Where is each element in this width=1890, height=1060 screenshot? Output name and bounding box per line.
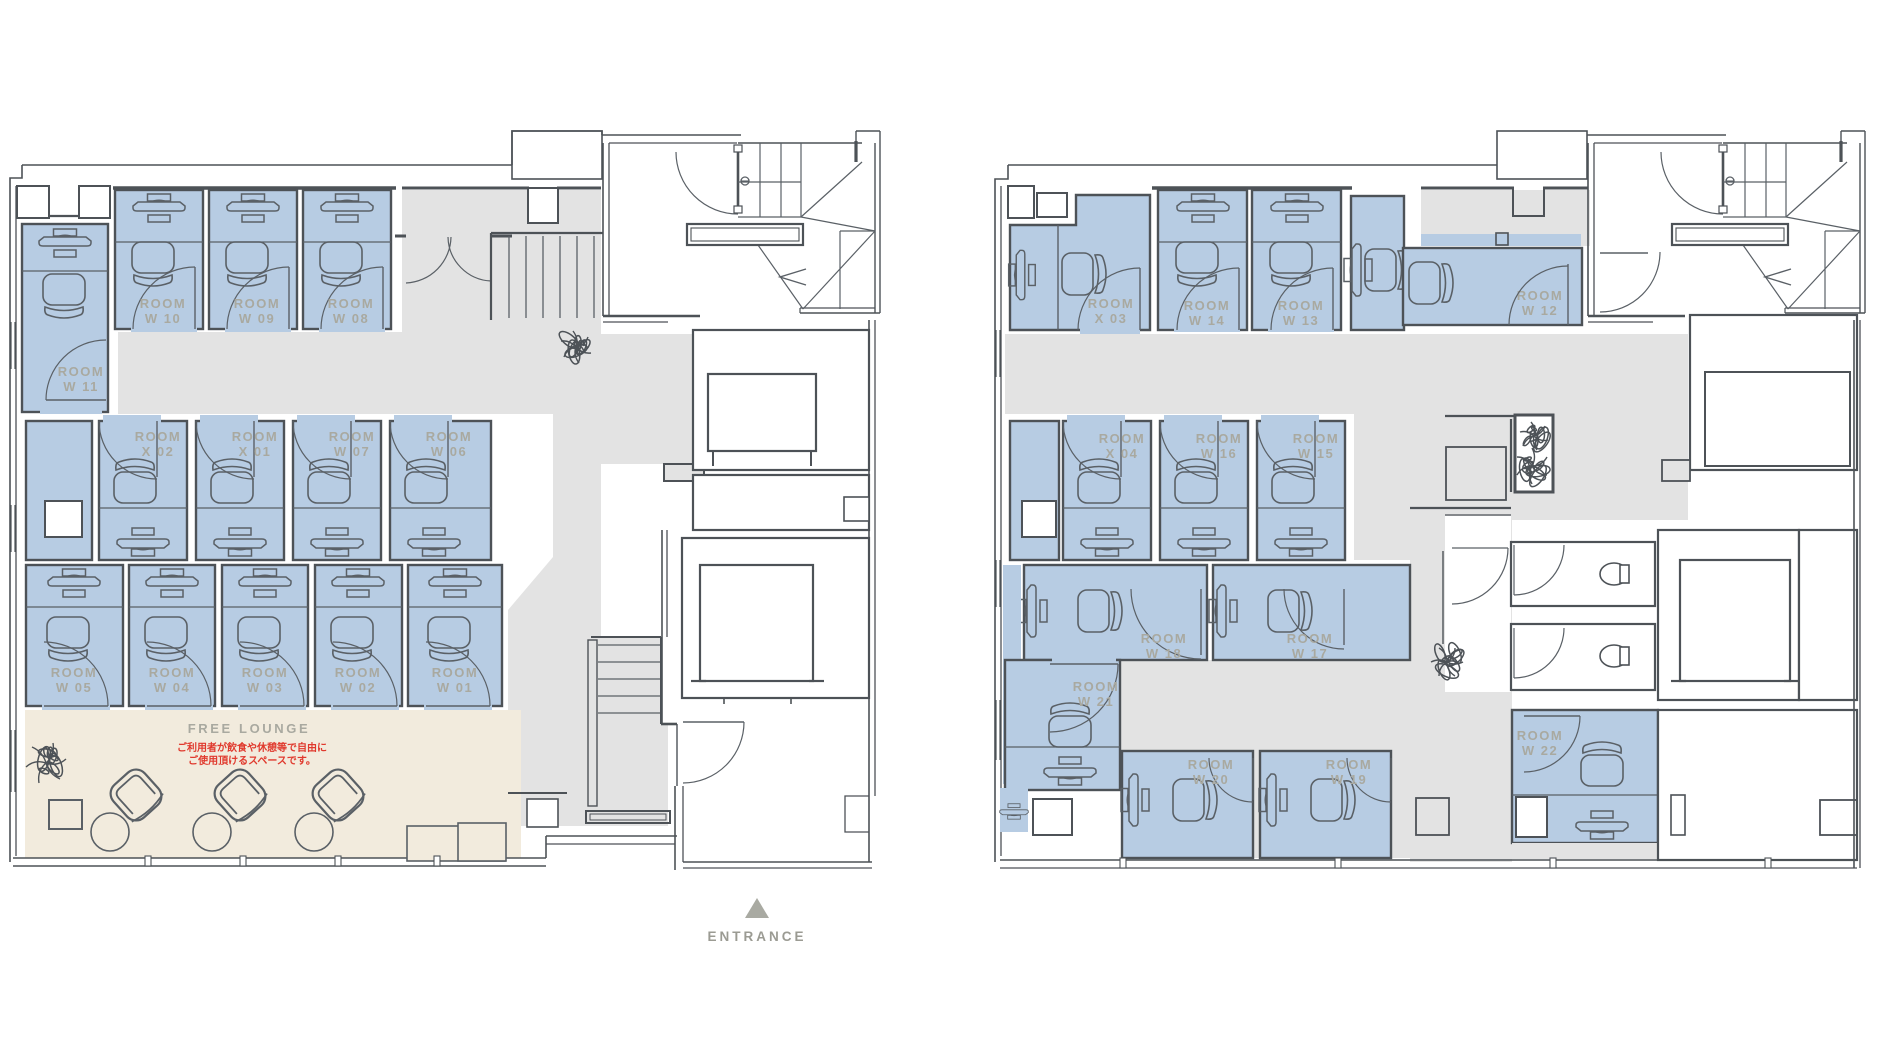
- svg-text:ROOM: ROOM: [1278, 298, 1324, 313]
- svg-text:ROOM: ROOM: [1099, 431, 1145, 446]
- svg-text:ROOM: ROOM: [1188, 757, 1234, 772]
- svg-text:ROOM: ROOM: [1287, 631, 1333, 646]
- svg-text:ROOM: ROOM: [234, 296, 280, 311]
- svg-text:ROOM: ROOM: [1141, 631, 1187, 646]
- svg-text:ROOM: ROOM: [1184, 298, 1230, 313]
- svg-text:ROOM: ROOM: [426, 429, 472, 444]
- svg-text:W 17: W 17: [1292, 646, 1328, 661]
- svg-text:ROOM: ROOM: [232, 429, 278, 444]
- svg-text:W 03: W 03: [247, 680, 283, 695]
- svg-text:W 04: W 04: [154, 680, 190, 695]
- svg-text:ご利用者が飲食や休憩等で自由に: ご利用者が飲食や休憩等で自由に: [177, 741, 327, 754]
- svg-text:W 22: W 22: [1522, 743, 1558, 758]
- svg-text:ROOM: ROOM: [1326, 757, 1372, 772]
- svg-text:X 04: X 04: [1106, 446, 1139, 461]
- svg-text:W 05: W 05: [56, 680, 92, 695]
- svg-text:W 07: W 07: [334, 444, 370, 459]
- svg-text:ROOM: ROOM: [335, 665, 381, 680]
- svg-text:ROOM: ROOM: [328, 296, 374, 311]
- svg-text:ROOM: ROOM: [1517, 728, 1563, 743]
- svg-text:W 10: W 10: [145, 311, 181, 326]
- svg-text:W 19: W 19: [1331, 772, 1367, 787]
- svg-text:ご使用頂けるスペースです。: ご使用頂けるスペースです。: [188, 754, 316, 767]
- svg-text:W 13: W 13: [1283, 313, 1319, 328]
- svg-text:ROOM: ROOM: [329, 429, 375, 444]
- svg-text:ROOM: ROOM: [1088, 296, 1134, 311]
- svg-text:W 09: W 09: [239, 311, 275, 326]
- svg-text:W 01: W 01: [437, 680, 473, 695]
- svg-text:ROOM: ROOM: [140, 296, 186, 311]
- svg-text:ROOM: ROOM: [58, 364, 104, 379]
- svg-text:ROOM: ROOM: [135, 429, 181, 444]
- svg-text:ROOM: ROOM: [1196, 431, 1242, 446]
- svg-text:W 08: W 08: [333, 311, 369, 326]
- svg-text:W 11: W 11: [63, 379, 99, 394]
- svg-text:ROOM: ROOM: [1517, 288, 1563, 303]
- svg-text:ROOM: ROOM: [1293, 431, 1339, 446]
- svg-text:ROOM: ROOM: [432, 665, 478, 680]
- svg-text:W 20: W 20: [1193, 772, 1229, 787]
- svg-text:FREE LOUNGE: FREE LOUNGE: [188, 721, 311, 736]
- svg-text:ENTRANCE: ENTRANCE: [707, 929, 806, 944]
- svg-text:ROOM: ROOM: [149, 665, 195, 680]
- svg-text:W 06: W 06: [431, 444, 467, 459]
- svg-text:W 16: W 16: [1201, 446, 1237, 461]
- svg-text:W 12: W 12: [1522, 303, 1558, 318]
- svg-text:X 01: X 01: [239, 444, 272, 459]
- svg-text:ROOM: ROOM: [242, 665, 288, 680]
- svg-text:ROOM: ROOM: [51, 665, 97, 680]
- svg-text:W 15: W 15: [1298, 446, 1334, 461]
- svg-text:W 14: W 14: [1189, 313, 1225, 328]
- svg-text:W 21: W 21: [1078, 694, 1114, 709]
- svg-text:X 03: X 03: [1095, 311, 1128, 326]
- svg-text:ROOM: ROOM: [1073, 679, 1119, 694]
- svg-text:X 02: X 02: [142, 444, 175, 459]
- svg-text:W 02: W 02: [340, 680, 376, 695]
- svg-text:W 18: W 18: [1146, 646, 1182, 661]
